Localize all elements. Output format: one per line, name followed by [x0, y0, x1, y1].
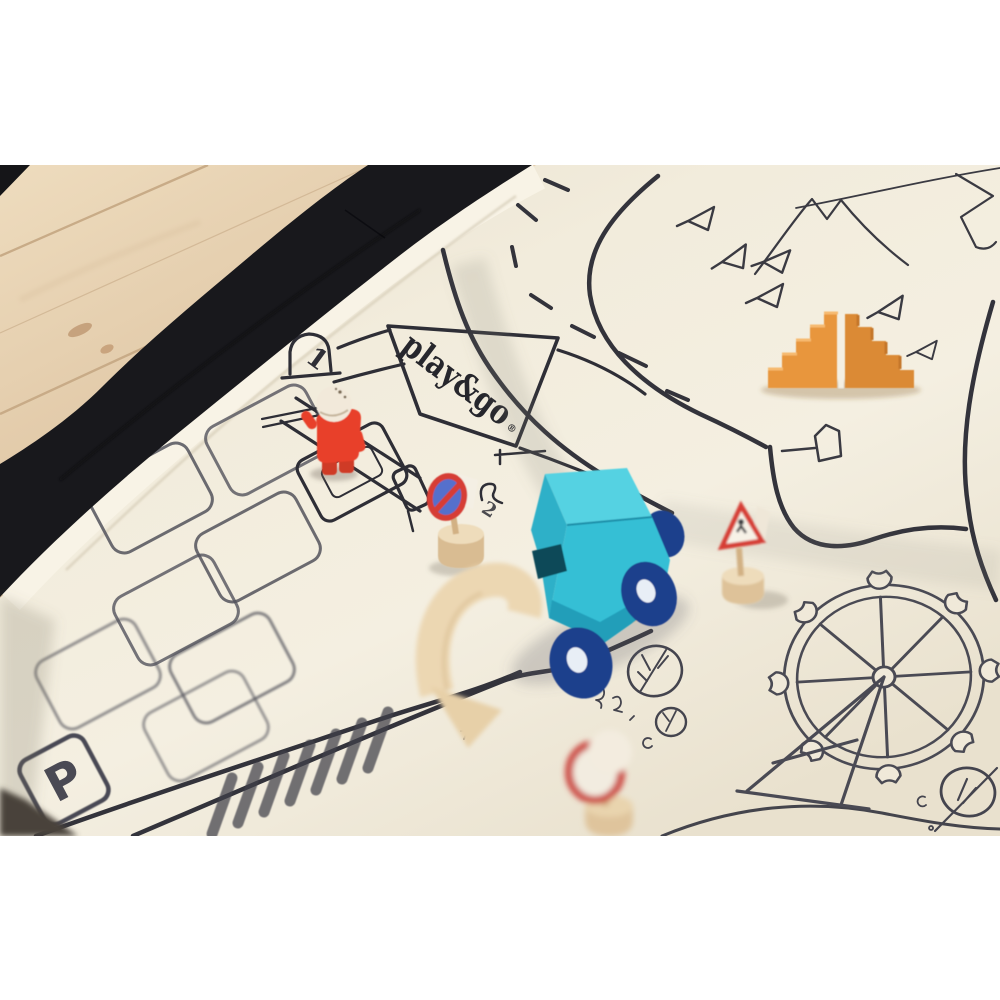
gondola-icon [979, 659, 999, 682]
photo-canvas: P 1 2 [0, 0, 1000, 1000]
letterbox-bottom [0, 836, 1000, 1000]
figure-head [316, 386, 352, 422]
sign-post [739, 548, 741, 576]
letterbox-top [0, 0, 1000, 165]
playmat-photo: P 1 2 [0, 0, 1000, 1000]
gondola-icon [769, 672, 789, 695]
sign-base-top [438, 524, 484, 544]
gondola-icon [876, 765, 901, 784]
wood-ball [588, 730, 632, 774]
